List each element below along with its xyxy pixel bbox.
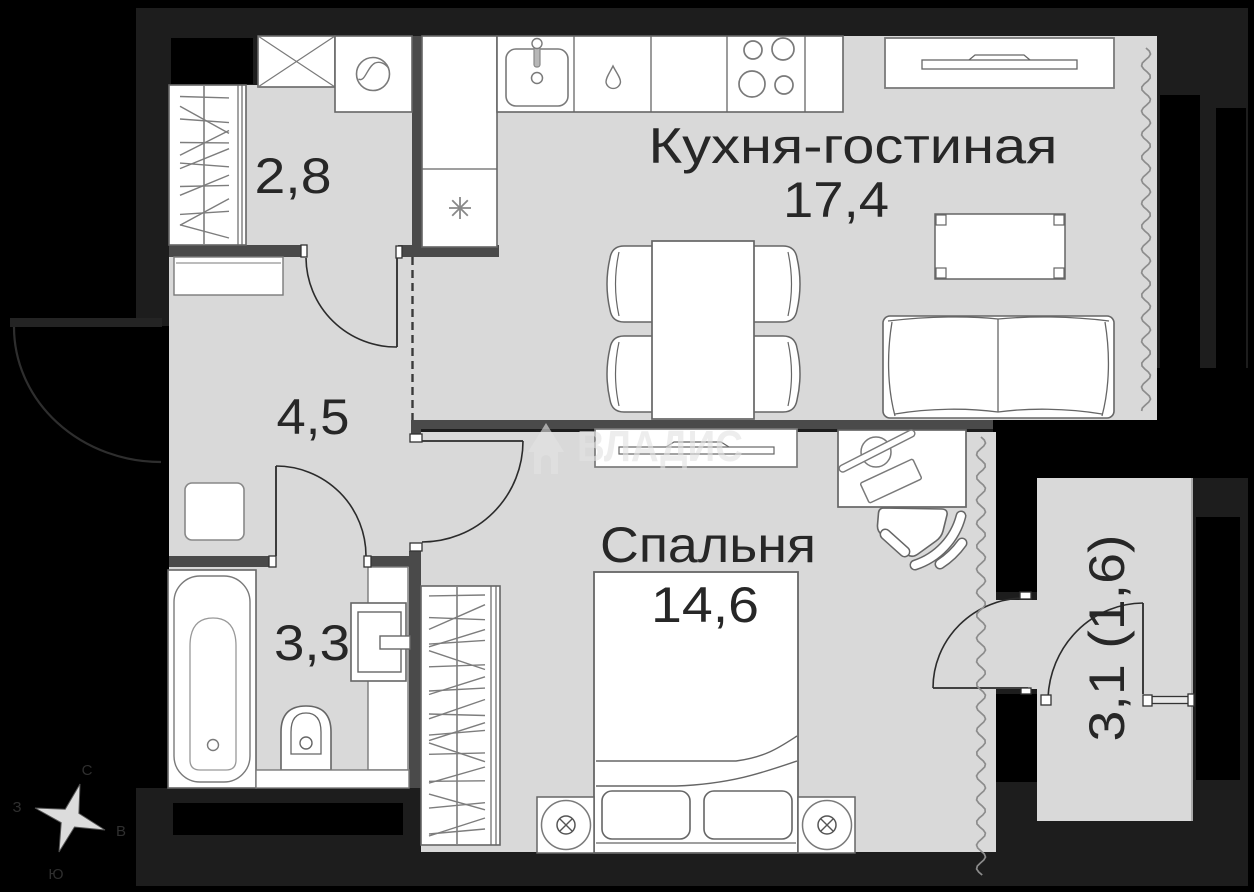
svg-text:З: З xyxy=(12,799,21,816)
svg-text:3,1 (1,6): 3,1 (1,6) xyxy=(1079,535,1135,742)
svg-text:4,5: 4,5 xyxy=(277,389,350,445)
svg-text:Кухня-гостиная: Кухня-гостиная xyxy=(649,118,1058,174)
svg-text:2,8: 2,8 xyxy=(255,148,332,204)
svg-text:14,6: 14,6 xyxy=(651,577,759,633)
svg-text:В: В xyxy=(116,823,126,840)
svg-text:ВЛАДИС: ВЛАДИС xyxy=(577,422,743,471)
svg-text:17,4: 17,4 xyxy=(783,172,889,228)
svg-text:С: С xyxy=(82,762,93,779)
svg-text:Ю: Ю xyxy=(48,866,63,883)
svg-text:Спальня: Спальня xyxy=(600,517,816,573)
svg-text:3,3: 3,3 xyxy=(274,615,350,671)
